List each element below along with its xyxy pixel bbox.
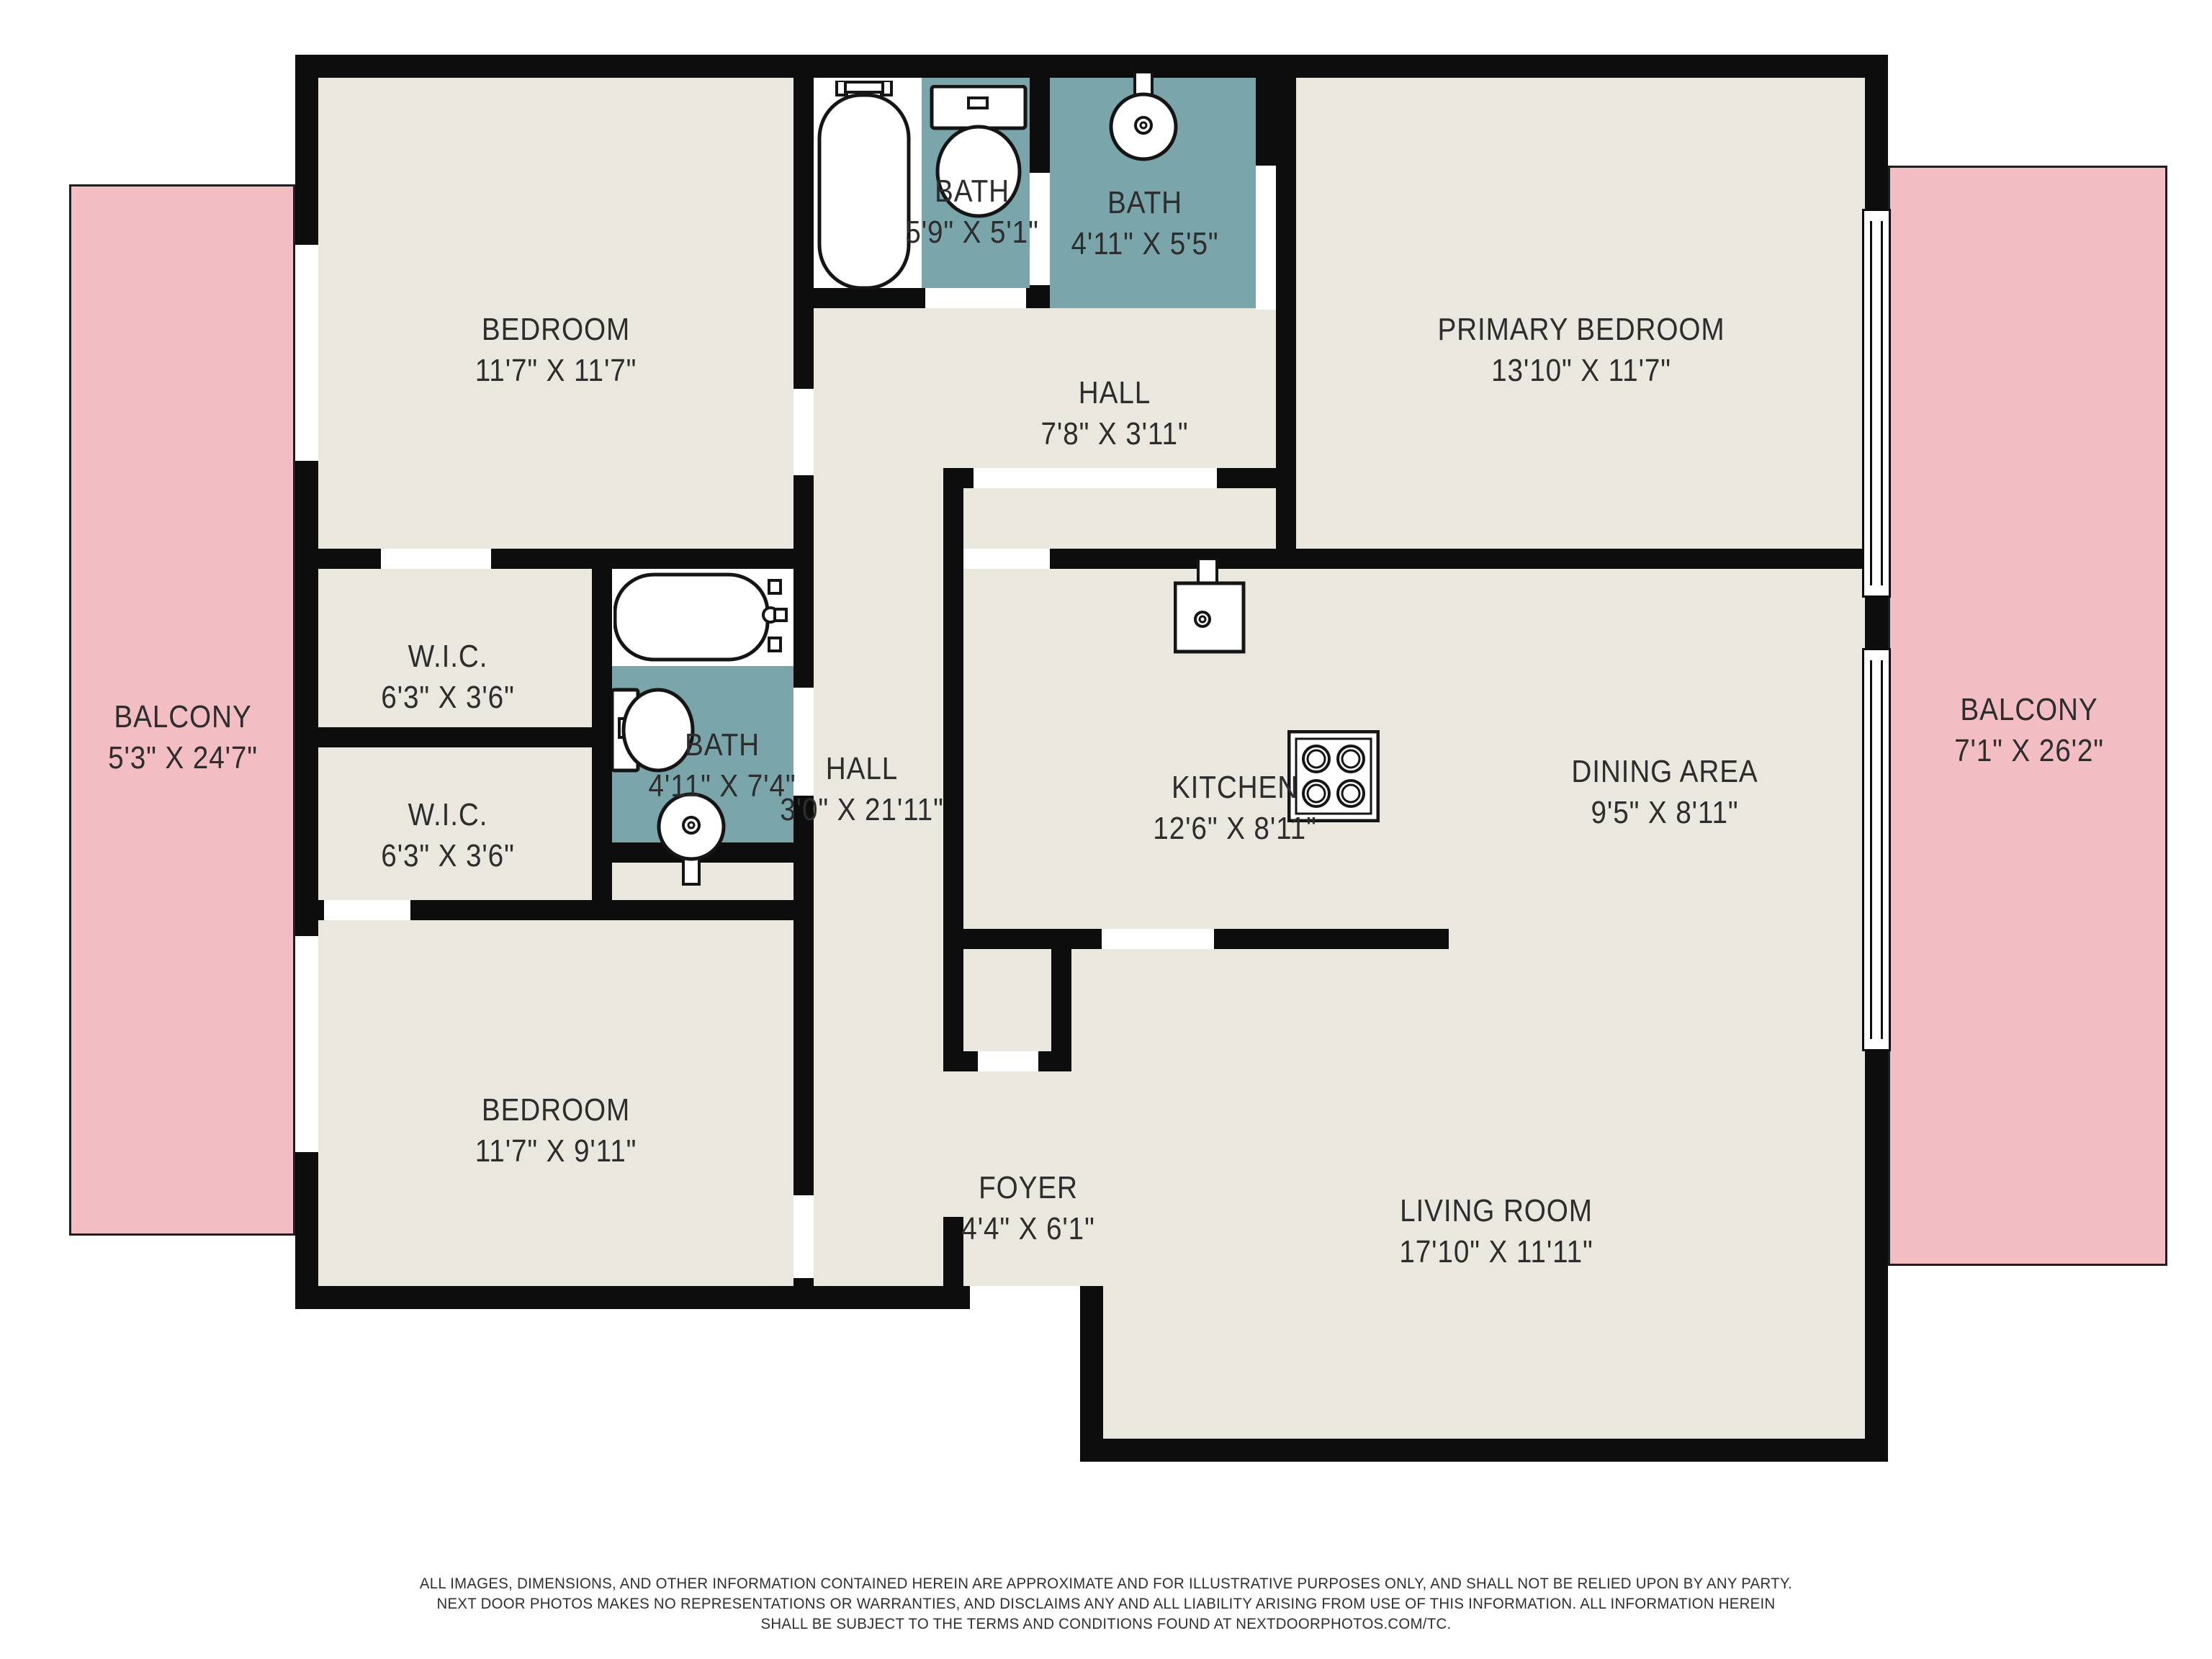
room-label-kitchen: KITCHEN 12'6" X 8'11" <box>1153 767 1316 849</box>
room-dims: 6'3" X 3'6" <box>381 835 514 876</box>
room-label-foyer: FOYER 4'4" X 6'1" <box>961 1167 1094 1249</box>
door-opening <box>793 1195 814 1278</box>
door-opening <box>381 549 491 569</box>
door-opening <box>324 900 410 920</box>
room-name: HALL <box>1041 372 1189 413</box>
room-name: BATH <box>649 724 796 765</box>
wall <box>943 468 963 1071</box>
disclaimer-text: ALL IMAGES, DIMENSIONS, AND OTHER INFORM… <box>408 1574 1804 1635</box>
room-label-primary-bedroom: PRIMARY BEDROOM 13'10" X 11'7" <box>1437 309 1725 391</box>
wall <box>793 1278 814 1309</box>
wall <box>1080 1286 1103 1462</box>
entry-opening <box>970 1286 1080 1309</box>
room-dims: 4'4" X 6'1" <box>961 1208 1094 1249</box>
room-label-bedroom-top: BEDROOM 11'7" X 11'7" <box>475 309 637 391</box>
room-dims: 12'6" X 8'11" <box>1153 808 1316 849</box>
wall <box>943 468 974 488</box>
room-dims: 4'11" X 5'5" <box>1071 223 1219 264</box>
room-label-bath-middle: BATH 4'11" X 7'4" <box>649 724 796 806</box>
room-label-dining: DINING AREA 9'5" X 8'11" <box>1571 751 1758 833</box>
room-name: BEDROOM <box>475 1089 637 1130</box>
wall <box>295 727 612 747</box>
bathtub-icon <box>817 81 912 291</box>
door-opening <box>978 1051 1038 1071</box>
room-floor-kitchen-dining <box>963 569 1868 929</box>
bathtub-icon <box>613 572 791 662</box>
door-opening <box>925 288 1026 308</box>
room-label-living-room: LIVING ROOM 17'10" X 11'11" <box>1399 1190 1593 1272</box>
wall <box>295 549 381 569</box>
room-name: BALCONY <box>108 696 258 737</box>
room-name: BEDROOM <box>475 309 637 350</box>
room-label-balcony-left: BALCONY 5'3" X 24'7" <box>108 696 258 778</box>
room-dims: 13'10" X 11'7" <box>1437 350 1725 391</box>
room-label-bath-top-1: BATH 5'9" X 5'1" <box>905 171 1038 253</box>
room-label-wic-2: W.I.C. 6'3" X 3'6" <box>381 794 514 876</box>
room-name: W.I.C. <box>381 794 514 835</box>
room-floor-living-room <box>1080 929 1868 1439</box>
wall <box>295 461 318 936</box>
room-name: W.I.C. <box>381 636 514 677</box>
room-dims: 5'9" X 5'1" <box>905 212 1038 253</box>
door-opening <box>1102 929 1214 949</box>
door-opening <box>963 549 1050 569</box>
sink-icon <box>1109 72 1178 180</box>
room-dims: 17'10" X 11'11" <box>1399 1231 1593 1272</box>
wall <box>410 900 814 920</box>
room-label-bedroom-bottom: BEDROOM 11'7" X 9'11" <box>475 1089 637 1172</box>
door-opening <box>793 389 814 475</box>
wall <box>1217 468 1296 488</box>
wall <box>295 55 1888 78</box>
wall <box>1214 929 1449 949</box>
wall <box>491 549 814 569</box>
wall <box>1256 78 1276 166</box>
room-dims: 11'7" X 11'7" <box>475 350 637 391</box>
wall <box>1865 1051 1888 1462</box>
door-opening <box>974 468 1217 488</box>
kitchen-sink-icon <box>1174 559 1246 654</box>
wall <box>1865 55 1888 209</box>
wall <box>793 78 814 389</box>
door-opening <box>1256 166 1276 310</box>
room-dims: 11'7" X 9'11" <box>475 1130 637 1172</box>
room-dims: 5'3" X 24'7" <box>108 737 258 778</box>
wall <box>1026 288 1050 308</box>
wall <box>295 1286 970 1309</box>
wall <box>1080 1439 1888 1462</box>
room-dims: 7'1" X 26'2" <box>1954 730 2104 771</box>
wall <box>1030 78 1050 173</box>
room-dims: 3'0" X 21'11" <box>780 789 943 830</box>
room-dims: 7'8" X 3'11" <box>1041 413 1189 454</box>
wall <box>943 929 1102 949</box>
room-label-bath-top-2: BATH 4'11" X 5'5" <box>1071 182 1219 264</box>
room-name: PRIMARY BEDROOM <box>1437 309 1725 350</box>
wall <box>943 1217 963 1309</box>
floor-plan: BEDROOM 11'7" X 11'7" BATH 5'9" X 5'1" B… <box>0 0 2212 1659</box>
room-dims: 6'3" X 3'6" <box>381 677 514 718</box>
room-name: FOYER <box>961 1167 1094 1208</box>
room-floor-bedroom-bottom <box>318 863 793 1286</box>
wall <box>295 55 318 245</box>
room-name: LIVING ROOM <box>1399 1190 1593 1231</box>
room-name: BATH <box>1071 182 1219 223</box>
wall <box>1051 929 1071 1071</box>
disclaimer-line: ALL IMAGES, DIMENSIONS, AND OTHER INFORM… <box>408 1574 1804 1594</box>
wall <box>793 475 814 688</box>
wall <box>1865 598 1888 648</box>
room-name: HALL <box>780 748 943 789</box>
room-label-balcony-right: BALCONY 7'1" X 26'2" <box>1954 689 2104 771</box>
room-name: BALCONY <box>1954 689 2104 730</box>
window <box>1862 209 1891 598</box>
room-name: DINING AREA <box>1571 751 1758 792</box>
wall <box>814 288 925 308</box>
wall <box>295 900 324 920</box>
room-dims: 4'11" X 7'4" <box>649 765 796 806</box>
room-label-hall-top: HALL 7'8" X 3'11" <box>1041 372 1189 454</box>
room-name: BATH <box>905 171 1038 212</box>
wall <box>1038 1051 1071 1071</box>
window <box>1862 648 1891 1051</box>
wall <box>943 1051 978 1071</box>
wall <box>1276 78 1296 569</box>
room-dims: 9'5" X 8'11" <box>1571 792 1758 833</box>
room-name: KITCHEN <box>1153 767 1316 808</box>
disclaimer-line: NEXT DOOR PHOTOS MAKES NO REPRESENTATION… <box>408 1594 1804 1614</box>
room-label-hall-main: HALL 3'0" X 21'11" <box>780 748 943 830</box>
room-label-wic-1: W.I.C. 6'3" X 3'6" <box>381 636 514 718</box>
disclaimer-line: SHALL BE SUBJECT TO THE TERMS AND CONDIT… <box>408 1614 1804 1635</box>
